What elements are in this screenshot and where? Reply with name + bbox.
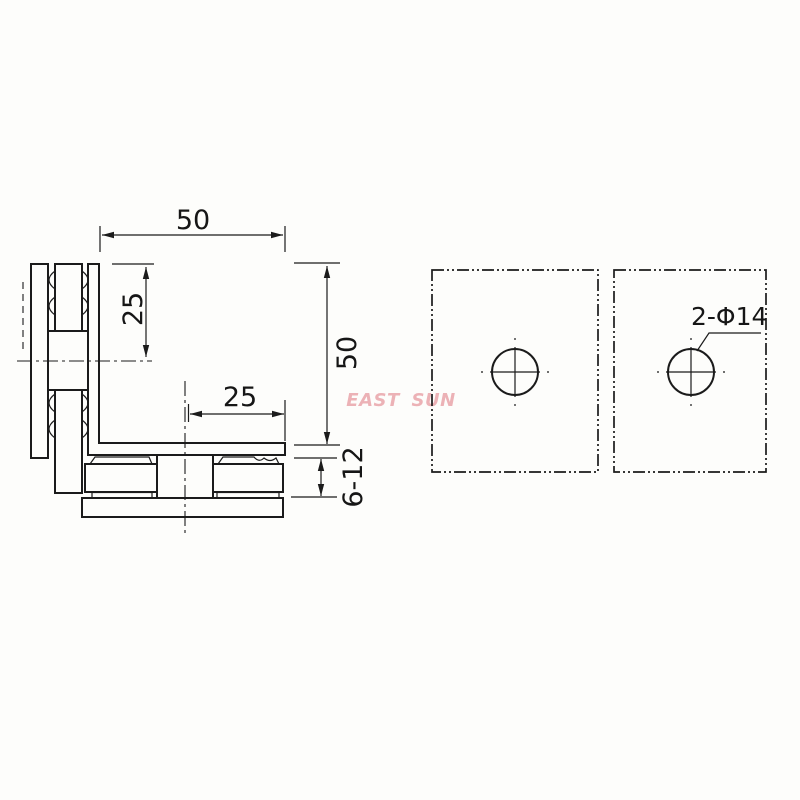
gasket-strip-top-left [90,457,152,464]
glass-pane-horizontal-left [85,464,157,492]
clamp-face-plate-right [614,270,766,472]
arrowhead-right [272,411,284,417]
extension-lines [291,458,337,497]
dimension-side-height: 50 [294,263,363,445]
glass-pane-vertical-upper [55,264,82,331]
dimension-label: 6-12 [338,446,369,507]
hole-callout: 2-Φ14 [691,302,767,351]
outer-plate-bottom [82,498,283,517]
leader-line [697,333,761,351]
dimension-hole-offset-vertical: 25 [112,264,154,357]
hole-left [481,338,549,406]
technical-drawing-page: EAST SUN [0,0,800,800]
vertical-leg [23,264,88,493]
arrowhead-bottom [143,345,149,357]
gasket-strip-top-right [218,457,279,464]
drawing-canvas: EAST SUN [0,0,800,800]
dimension-glass-thickness: 6-12 [291,446,369,507]
arrowhead-right [271,232,283,238]
hole-right [657,338,725,406]
arrowhead-bottom [318,484,324,496]
dimension-label: 50 [332,336,363,370]
arrowhead-top [324,266,330,278]
dimension-label: 25 [223,382,257,413]
arrowhead-left [102,232,114,238]
glass-pane-vertical-lower [55,390,82,493]
dimension-top-width: 50 [100,205,285,252]
hole-diameter-label: 2-Φ14 [691,302,767,331]
arrowhead-bottom [324,432,330,444]
face-view: 2-Φ14 [432,270,767,472]
horizontal-leg [82,455,283,517]
arrowhead-left [190,411,202,417]
dimension-label: 25 [118,292,149,326]
dimension-label: 50 [176,205,210,236]
section-view: 50 25 50 25 [17,205,369,534]
dimension-hole-offset-horizontal: 25 [189,382,286,441]
arrowhead-top [318,459,324,471]
arrowhead-top [143,267,149,279]
glass-pane-horizontal-right [213,464,283,492]
watermark: EAST SUN [346,390,455,411]
